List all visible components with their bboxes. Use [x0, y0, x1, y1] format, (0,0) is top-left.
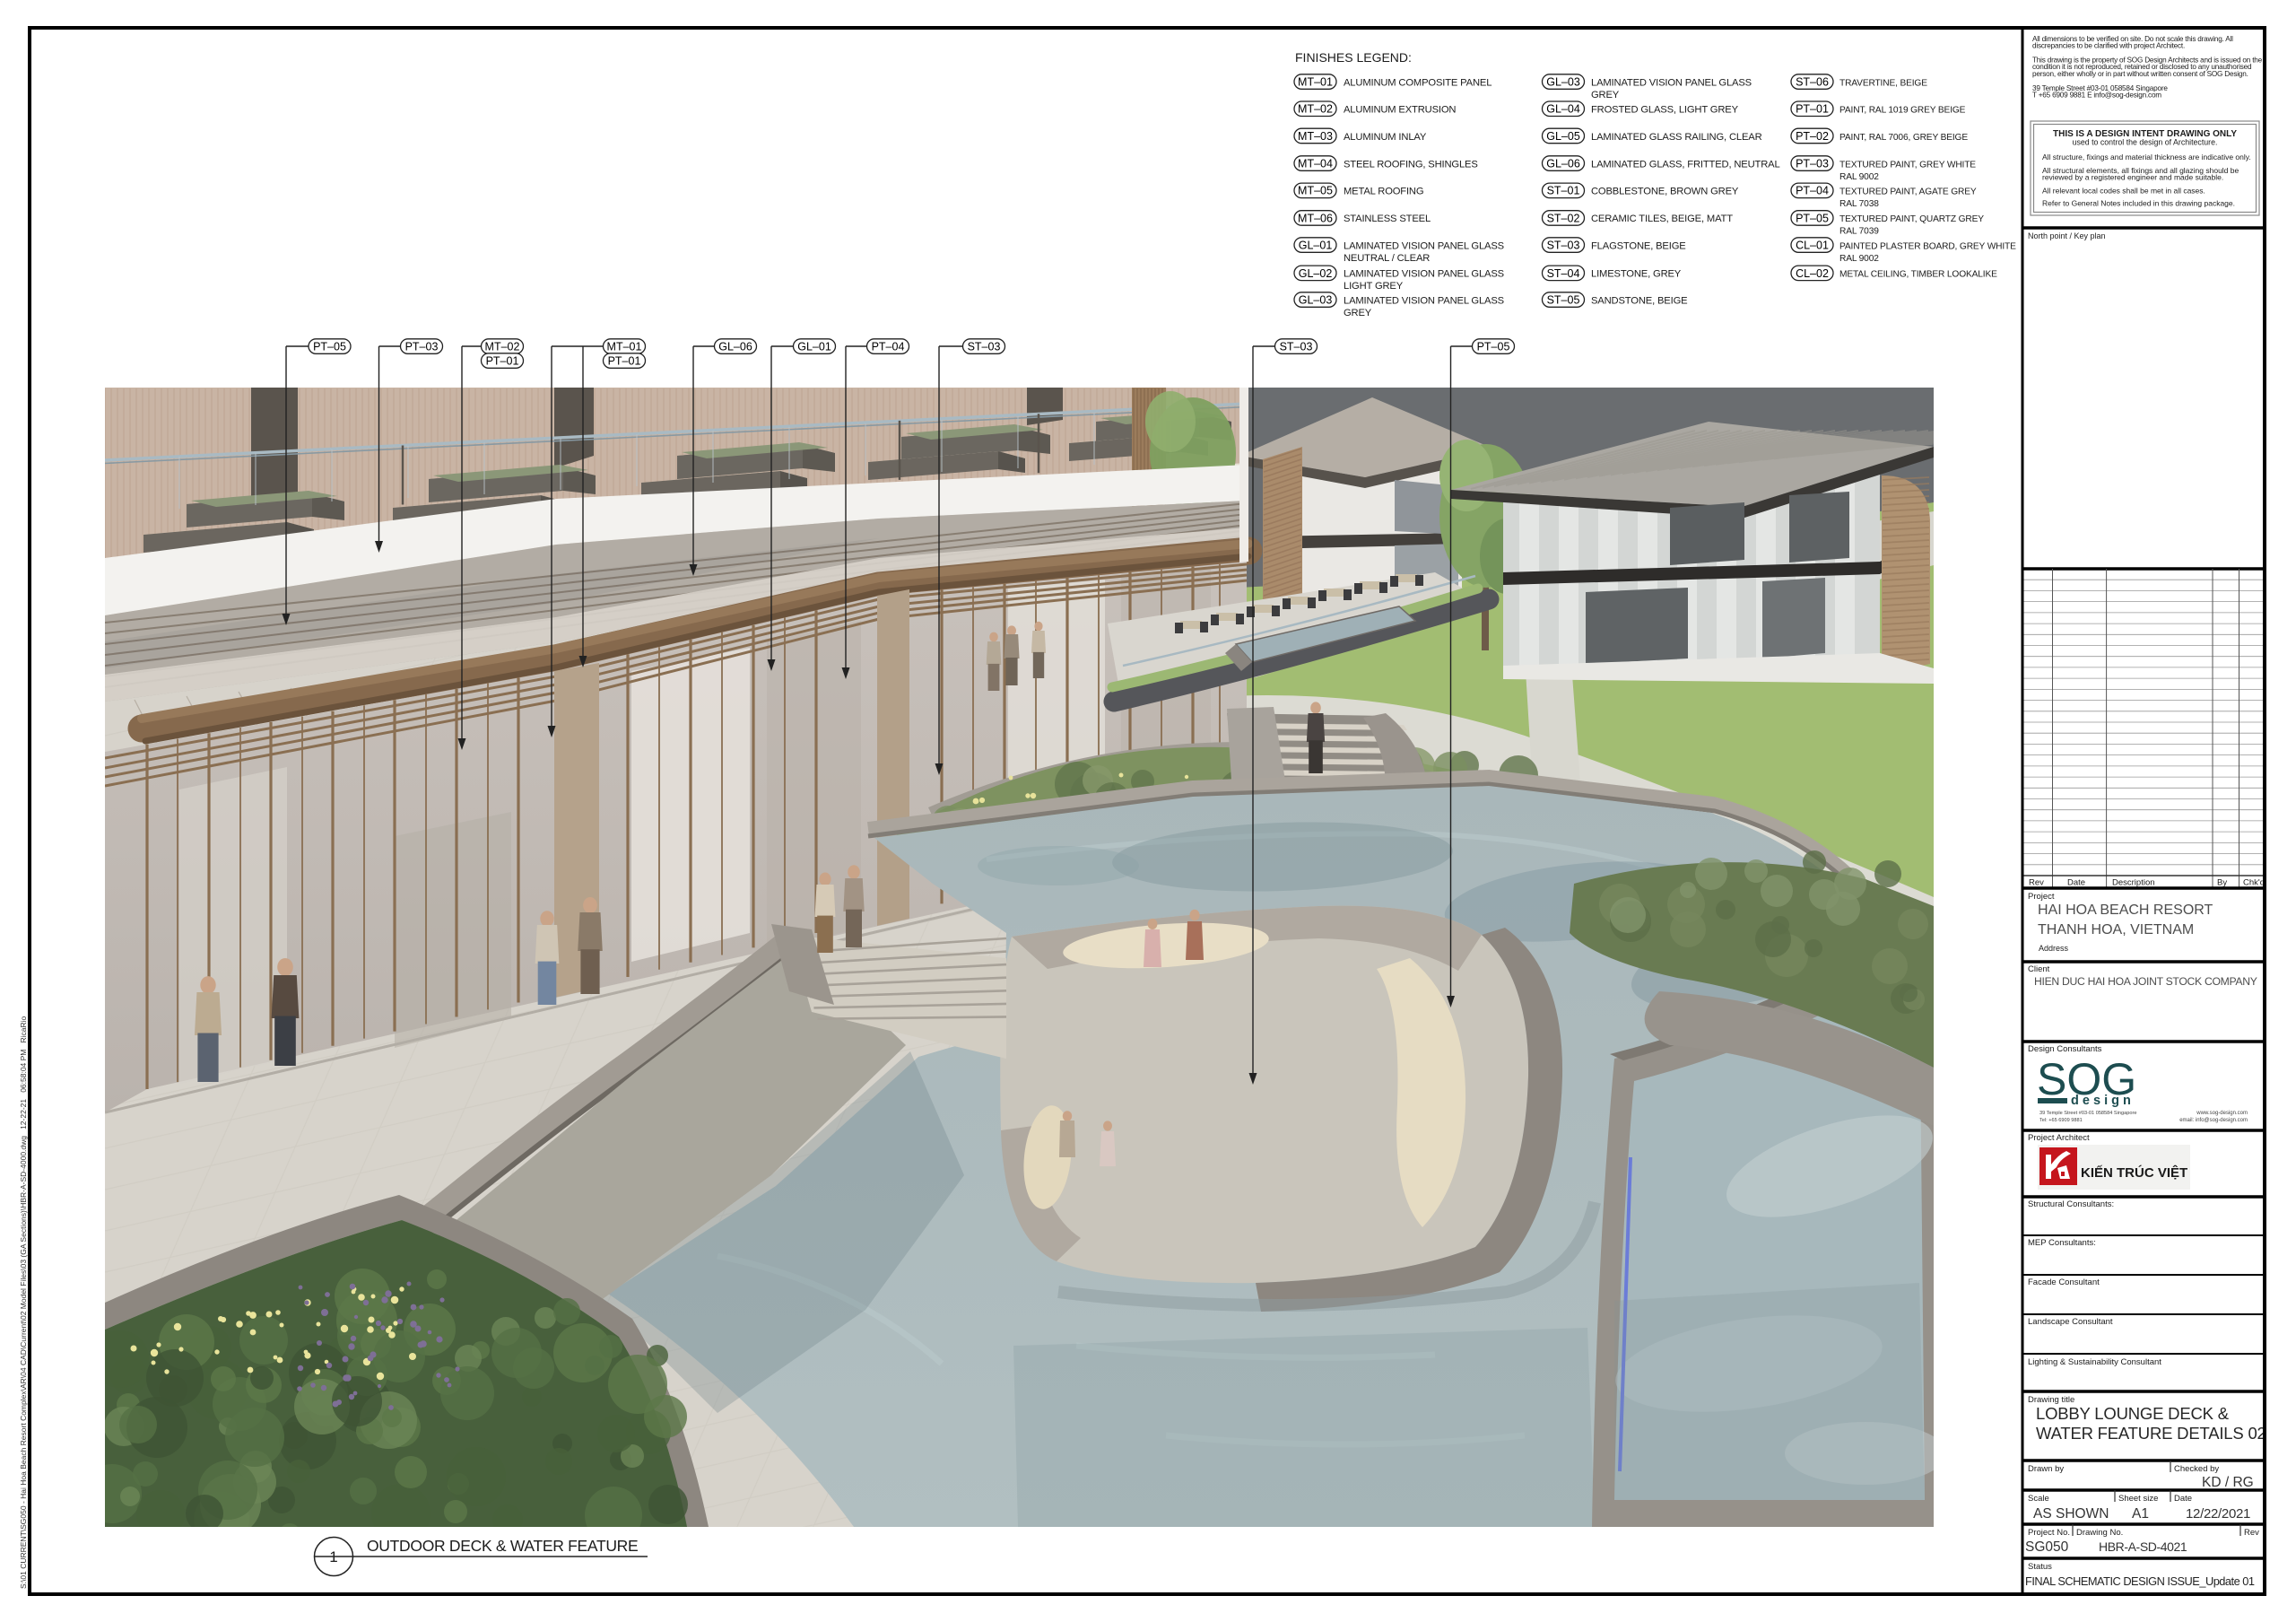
svg-text:PT–03: PT–03 [405, 340, 439, 353]
svg-text:GL–04: GL–04 [1546, 103, 1580, 116]
svg-text:Facade Consultant: Facade Consultant [2028, 1278, 2100, 1287]
svg-text:Lighting & Sustainability Cons: Lighting & Sustainability Consultant [2028, 1357, 2161, 1367]
svg-text:Scale: Scale [2028, 1494, 2049, 1504]
svg-text:FINAL SCHEMATIC DESIGN ISSUE_U: FINAL SCHEMATIC DESIGN ISSUE_Update 01 [2025, 1574, 2255, 1588]
svg-text:TEXTURED PAINT, GREY WHITE: TEXTURED PAINT, GREY WHITE [1839, 160, 1976, 170]
svg-text:RAL 9002: RAL 9002 [1839, 254, 1879, 264]
svg-text:All relevant local codes shall: All relevant local codes shall be met in… [2042, 187, 2205, 196]
svg-text:KIẾN TRÚC VIỆT: KIẾN TRÚC VIỆT [2081, 1164, 2187, 1181]
svg-text:Project No.: Project No. [2028, 1528, 2070, 1538]
svg-text:MEP Consultants:: MEP Consultants: [2028, 1238, 2096, 1248]
svg-text:KD / RG: KD / RG [2202, 1475, 2254, 1490]
svg-text:T +65 6909 9881 E info@sog-des: T +65 6909 9881 E info@sog-design.com [2032, 92, 2161, 100]
svg-text:ST–02: ST–02 [1547, 212, 1580, 224]
svg-text:ST–01: ST–01 [1547, 185, 1580, 197]
svg-text:Rev: Rev [2244, 1528, 2259, 1538]
svg-text:STAINLESS STEEL: STAINLESS STEEL [1344, 214, 1431, 224]
svg-text:PT–04: PT–04 [1796, 185, 1829, 197]
svg-text:SG050: SG050 [2025, 1539, 2069, 1555]
svg-text:By: By [2217, 878, 2227, 888]
svg-text:Rev: Rev [2029, 878, 2044, 888]
svg-text:All structure, fixings and mat: All structure, fixings and material thic… [2042, 153, 2251, 161]
svg-text:HBR-A-SD-4021: HBR-A-SD-4021 [2099, 1539, 2187, 1554]
svg-text:Tel: +65 6909 9881: Tel: +65 6909 9881 [2039, 1118, 2083, 1123]
svg-text:OUTDOOR DECK & WATER FEATURE: OUTDOOR DECK & WATER FEATURE [367, 1537, 638, 1555]
svg-text:METAL ROOFING: METAL ROOFING [1344, 187, 1423, 197]
svg-text:Checked by: Checked by [2174, 1464, 2219, 1474]
svg-text:MT–03: MT–03 [1298, 130, 1333, 143]
svg-text:North point / Key plan: North point / Key plan [2028, 231, 2106, 240]
svg-text:GL–03: GL–03 [1299, 293, 1333, 306]
svg-text:PAINTED PLASTER BOARD, GREY WH: PAINTED PLASTER BOARD, GREY WHITE [1839, 241, 2016, 251]
svg-text:Chk'd: Chk'd [2243, 878, 2265, 888]
svg-text:GL–01: GL–01 [797, 340, 831, 353]
svg-text:METAL CEILING, TIMBER LOOKALIK: METAL CEILING, TIMBER LOOKALIKE [1839, 270, 1997, 280]
svg-text:LOBBY LOUNGE DECK &: LOBBY LOUNGE DECK & [2036, 1404, 2230, 1423]
svg-text:CL–01: CL–01 [1796, 239, 1829, 251]
svg-text:TEXTURED PAINT, QUARTZ GREY: TEXTURED PAINT, QUARTZ GREY [1839, 214, 1984, 224]
svg-text:STEEL ROOFING, SHINGLES: STEEL ROOFING, SHINGLES [1344, 159, 1478, 170]
svg-text:FINISHES LEGEND:: FINISHES LEGEND: [1295, 50, 1412, 65]
svg-text:PT–04: PT–04 [872, 340, 905, 353]
svg-text:MT–05: MT–05 [1298, 185, 1333, 197]
svg-text:TRAVERTINE, BEIGE: TRAVERTINE, BEIGE [1839, 78, 1927, 88]
svg-text:GL–06: GL–06 [718, 340, 752, 353]
svg-text:RAL 9002: RAL 9002 [1839, 172, 1879, 182]
svg-text:WATER FEATURE DETAILS 02: WATER FEATURE DETAILS 02 [2036, 1424, 2266, 1443]
svg-text:LAMINATED VISION PANEL GLASS: LAMINATED VISION PANEL GLASS [1344, 269, 1504, 280]
svg-text:PT–05: PT–05 [1477, 340, 1510, 353]
svg-text:ALUMINUM EXTRUSION: ALUMINUM EXTRUSION [1344, 105, 1456, 116]
svg-text:GL–05: GL–05 [1546, 130, 1580, 143]
svg-text:RAL 7038: RAL 7038 [1839, 199, 1879, 209]
svg-text:PT–05: PT–05 [1796, 212, 1829, 224]
svg-text:FROSTED GLASS, LIGHT GREY: FROSTED GLASS, LIGHT GREY [1591, 105, 1739, 116]
svg-text:Refer to General Notes include: Refer to General Notes included in this … [2042, 199, 2235, 208]
svg-text:CL–02: CL–02 [1796, 267, 1829, 280]
svg-text:Drawing No.: Drawing No. [2076, 1528, 2123, 1538]
svg-text:GL–01: GL–01 [1299, 239, 1333, 251]
svg-text:Structural Consultants:: Structural Consultants: [2028, 1199, 2114, 1209]
svg-text:Sheet size: Sheet size [2118, 1494, 2158, 1504]
svg-text:ST–03: ST–03 [968, 340, 1001, 353]
svg-text:PT–05: PT–05 [313, 340, 346, 353]
svg-text:MT–02: MT–02 [1298, 103, 1333, 116]
svg-text:MT–01: MT–01 [607, 340, 642, 353]
svg-text:AS SHOWN: AS SHOWN [2033, 1506, 2109, 1522]
svg-text:PT–03: PT–03 [1796, 157, 1829, 170]
svg-text:Client: Client [2028, 964, 2050, 974]
svg-text:LAMINATED GLASS, FRITTED, NEUT: LAMINATED GLASS, FRITTED, NEUTRAL [1591, 159, 1780, 170]
svg-text:GL–02: GL–02 [1299, 267, 1333, 280]
svg-text:Drawn by: Drawn by [2028, 1464, 2064, 1474]
svg-text:PAINT, RAL 1019 GREY BEIGE: PAINT, RAL 1019 GREY BEIGE [1839, 106, 1966, 116]
svg-text:LIGHT GREY: LIGHT GREY [1344, 281, 1404, 292]
svg-text:Status: Status [2028, 1562, 2052, 1572]
svg-text:LIMESTONE, GREY: LIMESTONE, GREY [1591, 269, 1682, 280]
svg-text:email: info@sog-design.com: email: info@sog-design.com [2179, 1118, 2248, 1123]
svg-text:Description: Description [2112, 878, 2155, 888]
svg-text:ST–03: ST–03 [1547, 239, 1580, 251]
svg-text:NEUTRAL / CLEAR: NEUTRAL / CLEAR [1344, 253, 1430, 264]
svg-text:Project Architect: Project Architect [2028, 1133, 2090, 1143]
svg-text:www.sog-design.com: www.sog-design.com [2196, 1111, 2248, 1116]
svg-text:SANDSTONE, BEIGE: SANDSTONE, BEIGE [1591, 295, 1687, 306]
svg-text:person, either wholly or in pa: person, either wholly or in part without… [2032, 70, 2248, 78]
svg-text:ST–05: ST–05 [1547, 293, 1580, 306]
svg-text:Project: Project [2028, 892, 2055, 902]
svg-text:TEXTURED PAINT, AGATE GREY: TEXTURED PAINT, AGATE GREY [1839, 187, 1977, 197]
svg-text:A1: A1 [2132, 1506, 2149, 1522]
svg-text:LAMINATED VISION PANEL GLASS: LAMINATED VISION PANEL GLASS [1344, 295, 1504, 306]
svg-text:FLAGSTONE, BEIGE: FLAGSTONE, BEIGE [1591, 240, 1686, 251]
svg-text:Landscape Consultant: Landscape Consultant [2028, 1317, 2113, 1327]
svg-text:reviewed by a registered engin: reviewed by a registered engineer and ma… [2042, 173, 2223, 182]
svg-text:LAMINATED VISION PANEL GLASS: LAMINATED VISION PANEL GLASS [1591, 77, 1752, 88]
svg-text:LAMINATED VISION PANEL GLASS: LAMINATED VISION PANEL GLASS [1344, 240, 1504, 251]
svg-text:PT–02: PT–02 [1796, 130, 1829, 143]
svg-text:Address: Address [2039, 944, 2069, 953]
svg-text:ST–03: ST–03 [1280, 340, 1313, 353]
svg-text:ALUMINUM COMPOSITE PANEL: ALUMINUM COMPOSITE PANEL [1344, 77, 1492, 88]
svg-text:PAINT, RAL 7006, GREY BEIGE: PAINT, RAL 7006, GREY BEIGE [1839, 133, 1968, 143]
svg-text:LAMINATED GLASS RAILING, CLEAR: LAMINATED GLASS RAILING, CLEAR [1591, 132, 1762, 143]
svg-text:GL–06: GL–06 [1546, 157, 1580, 170]
svg-text:GL–03: GL–03 [1546, 75, 1580, 88]
svg-text:S:\01 CURRENT\SG050 - Hai Hoa: S:\01 CURRENT\SG050 - Hai Hoa Beach Reso… [19, 1016, 28, 1589]
svg-text:PT–01: PT–01 [608, 354, 641, 367]
svg-text:MT–04: MT–04 [1298, 157, 1333, 170]
svg-text:PT–01: PT–01 [486, 354, 519, 367]
svg-text:MT–06: MT–06 [1298, 212, 1333, 224]
svg-text:used to control the design of: used to control the design of Architectu… [2073, 138, 2218, 147]
svg-text:39 Temple Street #03-01 058584: 39 Temple Street #03-01 058584 Singapore [2039, 1111, 2136, 1116]
svg-text:RAL 7039: RAL 7039 [1839, 227, 1879, 237]
svg-text:GREY: GREY [1591, 90, 1620, 100]
svg-text:discrepancies to be clarified: discrepancies to be clarified with proje… [2032, 42, 2185, 50]
svg-text:HIEN DUC HAI HOA JOINT STOCK C: HIEN DUC HAI HOA JOINT STOCK COMPANY [2034, 975, 2257, 988]
svg-text:CERAMIC TILES, BEIGE, MATT: CERAMIC TILES, BEIGE, MATT [1591, 214, 1733, 224]
svg-text:HAI HOA BEACH RESORT: HAI HOA BEACH RESORT [2038, 903, 2213, 918]
svg-text:COBBLESTONE, BROWN GREY: COBBLESTONE, BROWN GREY [1591, 187, 1739, 197]
svg-text:MT–02: MT–02 [485, 340, 520, 353]
svg-text:THANH HOA, VIETNAM: THANH HOA, VIETNAM [2038, 922, 2194, 937]
svg-text:GREY: GREY [1344, 308, 1372, 318]
svg-text:PT–01: PT–01 [1796, 103, 1829, 116]
svg-text:ALUMINUM INLAY: ALUMINUM INLAY [1344, 132, 1427, 143]
svg-text:d e s i g n: d e s i g n [2071, 1094, 2131, 1108]
svg-text:ST–06: ST–06 [1796, 75, 1829, 88]
svg-text:MT–01: MT–01 [1298, 75, 1333, 88]
svg-text:Design Consultants: Design Consultants [2028, 1044, 2102, 1054]
svg-text:12/22/2021: 12/22/2021 [2186, 1506, 2250, 1522]
svg-text:Date: Date [2174, 1494, 2192, 1504]
svg-text:Date: Date [2067, 878, 2085, 888]
svg-text:ST–04: ST–04 [1547, 267, 1580, 280]
